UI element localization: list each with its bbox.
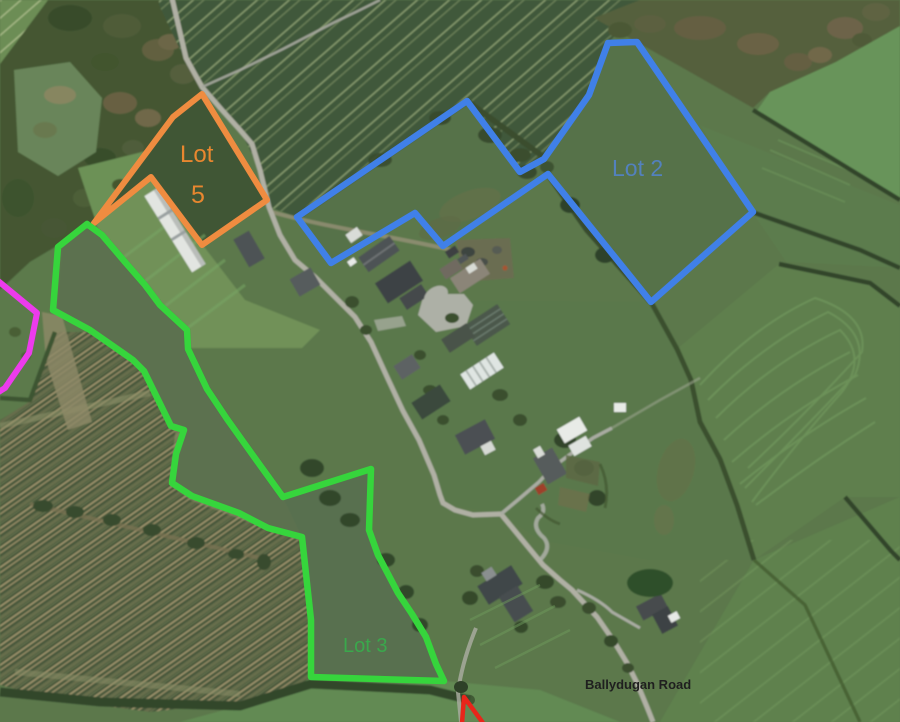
svg-text:Lot 2: Lot 2	[612, 155, 663, 181]
svg-text:Lot: Lot	[180, 141, 214, 168]
svg-text:5: 5	[191, 181, 205, 209]
svg-text:Ballydugan Road: Ballydugan Road	[585, 677, 691, 692]
svg-text:Lot 3: Lot 3	[343, 635, 387, 657]
